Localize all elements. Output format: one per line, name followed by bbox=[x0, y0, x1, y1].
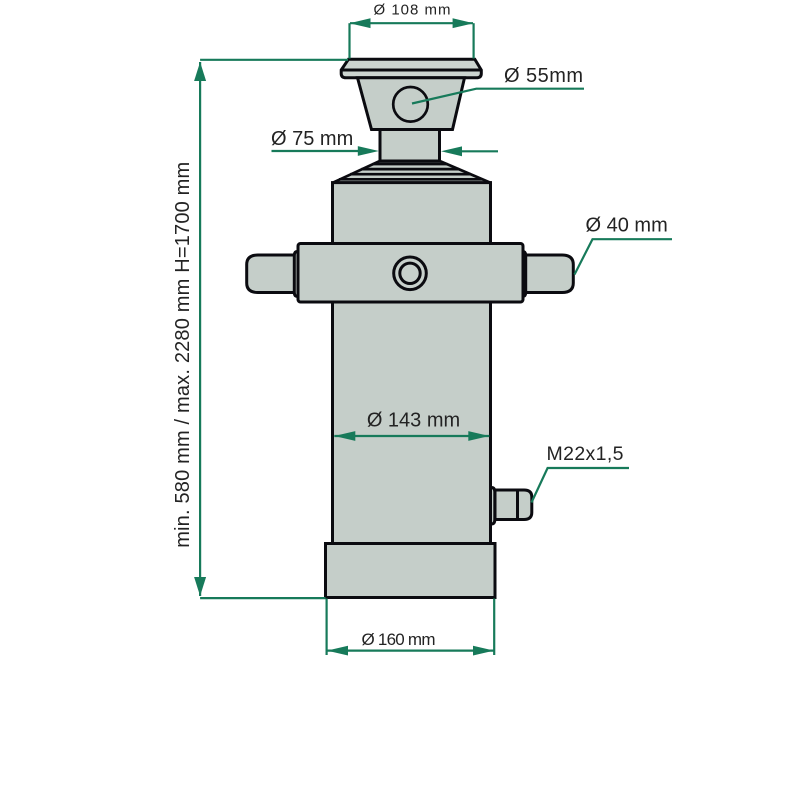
svg-text:Ø 75 mm: Ø 75 mm bbox=[271, 128, 353, 150]
svg-text:min. 580 mm / max. 2280 mm H=1: min. 580 mm / max. 2280 mm H=1700 mm bbox=[172, 162, 194, 548]
svg-text:Ø 40 mm: Ø 40 mm bbox=[586, 215, 668, 237]
svg-text:Ø 55mm: Ø 55mm bbox=[504, 65, 583, 87]
svg-text:Ø 108 mm: Ø 108 mm bbox=[374, 2, 451, 19]
svg-text:Ø 160 mm: Ø 160 mm bbox=[362, 630, 436, 649]
svg-text:Ø 143 mm: Ø 143 mm bbox=[367, 410, 460, 432]
svg-text:M22x1,5: M22x1,5 bbox=[547, 443, 624, 465]
